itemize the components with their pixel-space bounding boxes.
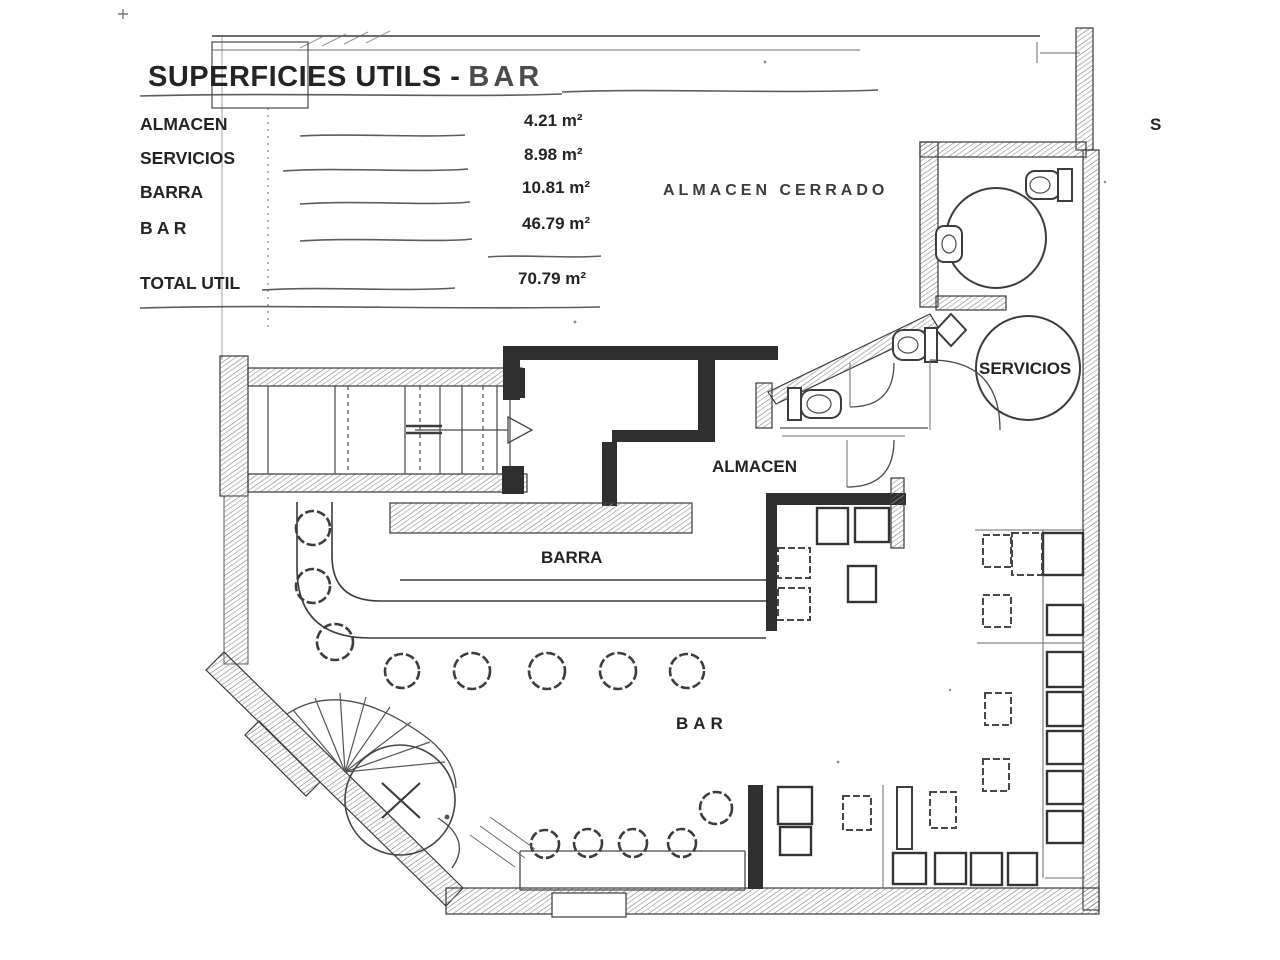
staircase — [248, 368, 532, 494]
seating-bottom — [470, 785, 1037, 890]
legend-value-barra: 10.81 m² — [522, 178, 590, 197]
legend-value-servicios: 8.98 m² — [524, 145, 583, 164]
stair-direction-arrow — [406, 417, 532, 443]
legend-label-barra: BARRA — [140, 182, 204, 202]
floor-plan-canvas: SUPERFICIES UTILS -BAR ALMACEN 4.21 m² S… — [0, 0, 1280, 960]
legend-label-almacen: ALMACEN — [140, 114, 228, 134]
bar-counter — [296, 502, 766, 689]
label-bar: BAR — [676, 714, 728, 733]
label-servicios: SERVICIOS — [979, 359, 1071, 378]
storeroom-walls — [503, 314, 938, 506]
legend-value-almacen: 4.21 m² — [524, 111, 583, 130]
sink-lobby — [936, 314, 966, 346]
floorplan-document: SUPERFICIES UTILS -BAR ALMACEN 4.21 m² S… — [0, 0, 1280, 960]
label-almacen-cerrado: ALMACEN CERRADO — [663, 182, 888, 199]
page-title-main: SUPERFICIES UTILS - — [148, 61, 460, 93]
bar-stools — [296, 511, 704, 689]
legend-label-bar: B A R — [140, 218, 187, 238]
cross-mark — [382, 783, 420, 818]
legend-value-total: 70.79 m² — [518, 269, 586, 288]
page-title-suffix: BAR — [468, 61, 543, 93]
legend-value-bar: 46.79 m² — [522, 214, 590, 233]
sink-wc1 — [936, 226, 962, 262]
label-barra: BARRA — [541, 548, 602, 567]
page-title: SUPERFICIES UTILS -BAR — [148, 61, 543, 93]
toilet-lobby-right — [893, 328, 937, 362]
label-edge-letter: S — [1150, 115, 1161, 134]
toilet-lobby-left — [788, 388, 841, 420]
toilet-top — [1026, 169, 1072, 201]
label-almacen: ALMACEN — [712, 457, 797, 476]
exterior-walls — [206, 28, 1099, 917]
plan-labels: ALMACEN CERRADO SERVICIOS ALMACEN BARRA … — [541, 115, 1161, 733]
legend-label-servicios: SERVICIOS — [140, 148, 235, 168]
legend-label-total: TOTAL UTIL — [140, 273, 240, 293]
